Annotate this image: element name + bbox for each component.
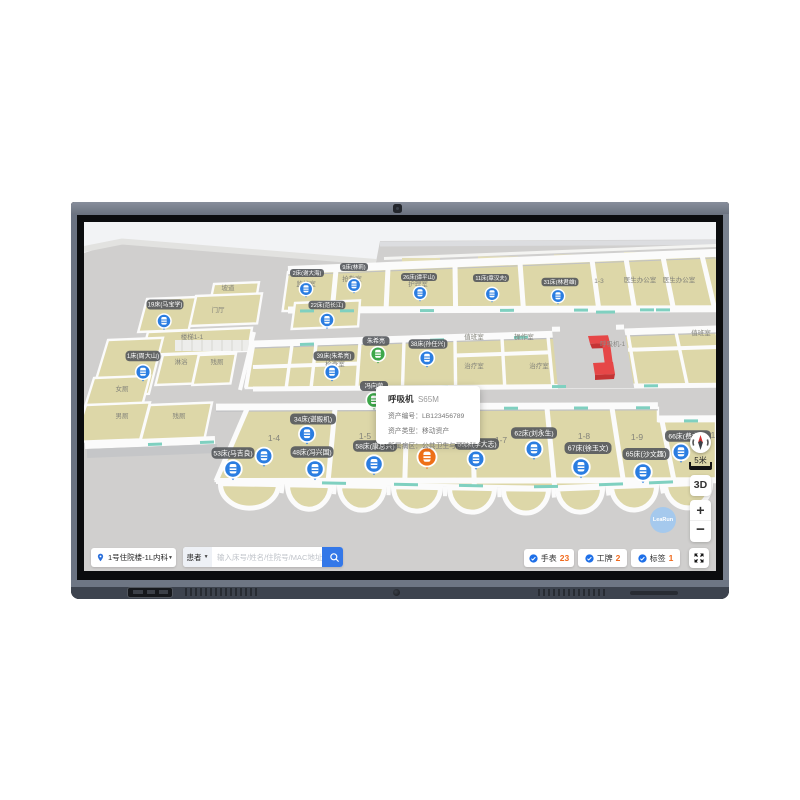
svg-text:53床(马吉良): 53床(马吉良) — [213, 448, 252, 457]
svg-text:26床(谭平山): 26床(谭平山) — [403, 273, 435, 281]
svg-text:1: 1 — [711, 430, 716, 440]
svg-text:1-3: 1-3 — [594, 278, 604, 285]
svg-text:65床(沙文趣): 65床(沙文趣) — [626, 450, 666, 459]
svg-text:1床(周大山): 1床(周大山) — [127, 352, 159, 360]
svg-text:操作室: 操作室 — [514, 332, 534, 341]
svg-text:11床(章汉夫): 11床(章汉夫) — [475, 274, 507, 282]
svg-text:67床(徐玉文): 67床(徐玉文) — [568, 444, 608, 453]
svg-text:1-5: 1-5 — [359, 431, 372, 441]
svg-text:62床(刘永生): 62床(刘永生) — [514, 428, 553, 437]
svg-text:治疗室: 治疗室 — [529, 361, 549, 370]
svg-text:1-4: 1-4 — [268, 433, 281, 443]
svg-text:9床(林莉): 9床(林莉) — [342, 263, 365, 271]
svg-text:楼梯1-1: 楼梯1-1 — [181, 332, 204, 341]
svg-text:1-8: 1-8 — [578, 431, 591, 441]
svg-text:2床(谢大海): 2床(谢大海) — [293, 269, 322, 277]
svg-text:22床(范长江): 22床(范长江) — [311, 301, 344, 309]
svg-text:残厕: 残厕 — [173, 411, 187, 420]
svg-text:残厕: 残厕 — [211, 357, 225, 366]
svg-text:39床(朱希亮): 39床(朱希亮) — [317, 352, 352, 360]
svg-text:门厅: 门厅 — [212, 305, 226, 314]
svg-text:38床(孙任兴): 38床(孙任兴) — [411, 340, 446, 348]
svg-text:呼吸机-1: 呼吸机-1 — [600, 339, 626, 348]
svg-text:19床(马宝学): 19床(马宝学) — [148, 301, 183, 309]
svg-text:值班室: 值班室 — [464, 332, 484, 341]
svg-text:男厕: 男厕 — [116, 412, 130, 420]
svg-text:值班室: 值班室 — [691, 328, 711, 337]
svg-text:医生办公室: 医生办公室 — [624, 275, 657, 284]
svg-text:淋浴: 淋浴 — [175, 357, 189, 366]
svg-text:女厕: 女厕 — [116, 384, 130, 393]
svg-text:34床(谌殿机): 34床(谌殿机) — [294, 414, 332, 423]
svg-text:医生办公室: 医生办公室 — [663, 275, 696, 284]
svg-text:1-9: 1-9 — [631, 432, 644, 442]
svg-text:治疗室: 治疗室 — [464, 361, 484, 370]
svg-text:48床(冯兴国): 48床(冯兴国) — [292, 447, 331, 456]
svg-text:坡道: 坡道 — [222, 283, 236, 292]
svg-text:朱希亮: 朱希亮 — [367, 337, 385, 345]
svg-text:31床(林君雄): 31床(林君雄) — [544, 278, 577, 286]
